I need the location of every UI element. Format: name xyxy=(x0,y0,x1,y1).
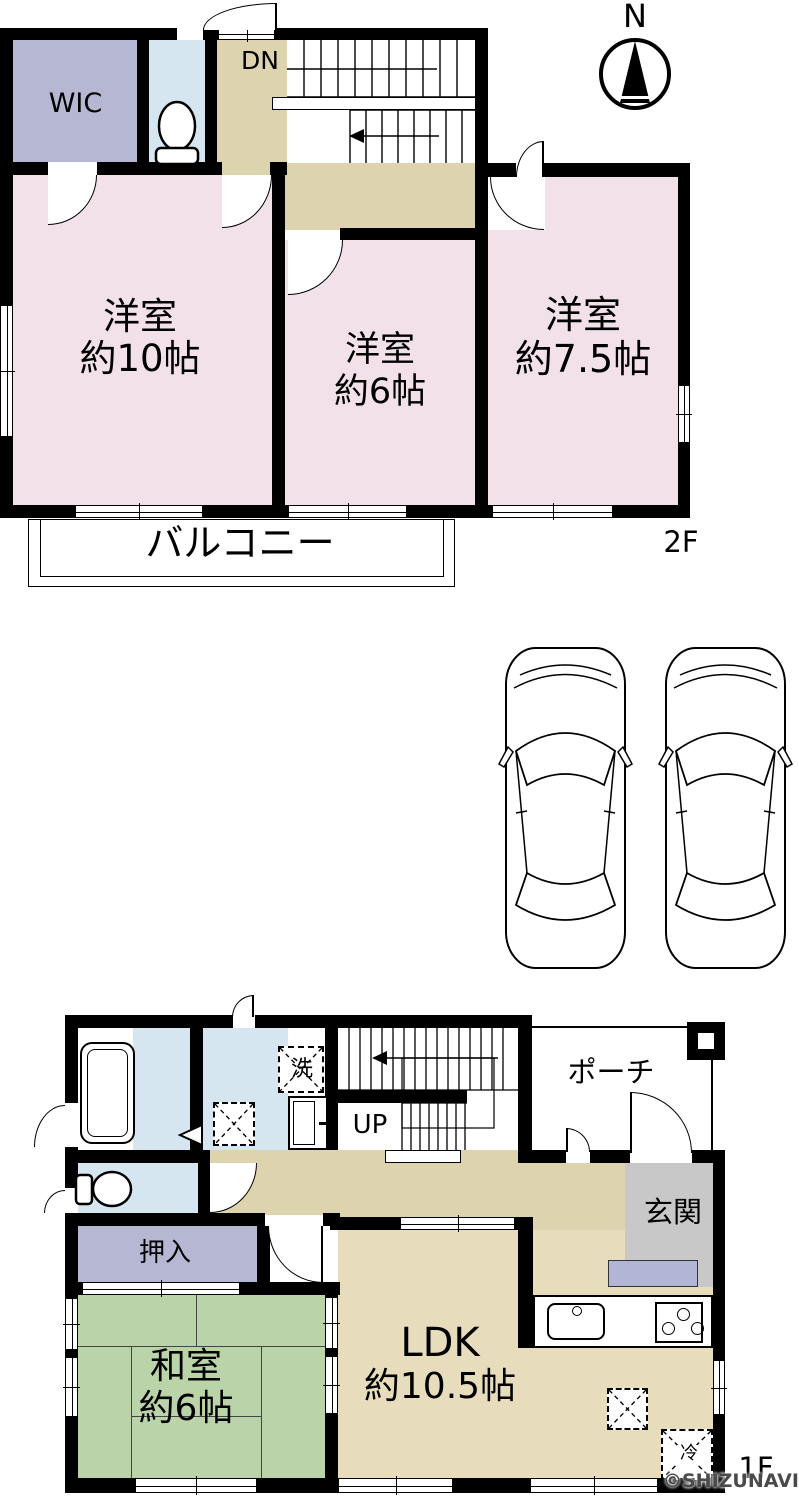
fixture-space xyxy=(213,1102,255,1146)
stair-bottom-step xyxy=(385,1150,461,1163)
tatami-line xyxy=(196,1295,197,1346)
vanity-bowl xyxy=(293,1101,315,1145)
fixture-space xyxy=(607,1388,648,1430)
window xyxy=(713,1360,725,1415)
washer-label: 洗 xyxy=(288,1058,316,1081)
ldk-size: 約10.5帖 xyxy=(350,1368,530,1406)
ldk-name: LDK xyxy=(394,1322,486,1364)
closet-label: 押入 xyxy=(133,1240,197,1267)
door-swing xyxy=(34,1105,65,1147)
tatami-line xyxy=(261,1346,262,1483)
entrance-door-swing xyxy=(630,1092,692,1153)
floor-1f-plan: 冷 UP 洗 ポーチ 玄関 押入 和室 約6帖 LDK 約10.5帖 1F xyxy=(0,0,799,1500)
wall xyxy=(65,1213,265,1226)
closet-sliding-door xyxy=(82,1282,240,1295)
kitchen-counter xyxy=(533,1295,713,1348)
window xyxy=(338,1478,453,1493)
watermark: ©SHIZUNAVI xyxy=(663,1472,797,1492)
faucet-icon xyxy=(572,1306,582,1316)
burner-icon xyxy=(691,1322,704,1335)
entrance-label: 玄関 xyxy=(641,1197,705,1227)
japanese-room-door-swing xyxy=(268,1226,323,1283)
bathtub-inner xyxy=(87,1049,128,1137)
porch-edge xyxy=(711,1058,713,1152)
floor-plan-sheet: WIC DN 洋室 約10帖 洋室 約6帖 洋室 約7.5帖 バルコニー 2F … xyxy=(0,0,799,1500)
stove xyxy=(655,1302,703,1343)
porch-label: ポーチ xyxy=(565,1057,657,1087)
wall xyxy=(518,1015,532,1163)
fridge-label: 冷 xyxy=(677,1445,701,1464)
sliding-door xyxy=(325,1356,338,1414)
wall xyxy=(590,1150,630,1163)
wall xyxy=(713,1150,725,1493)
toilet-icon xyxy=(74,1168,136,1210)
burner-icon xyxy=(677,1308,690,1321)
japanese-room-size: 約6帖 xyxy=(128,1390,244,1428)
wall xyxy=(532,1150,566,1163)
stairs-up-label: UP xyxy=(338,1112,402,1139)
wall xyxy=(65,1015,233,1028)
door-opening xyxy=(65,1103,78,1147)
vanity xyxy=(288,1096,328,1150)
pillar-core xyxy=(698,1033,714,1049)
porch-edge xyxy=(532,1026,692,1028)
wall xyxy=(518,1217,533,1348)
wall xyxy=(692,1150,725,1163)
door-swing xyxy=(44,1190,65,1213)
door-swing xyxy=(232,995,254,1017)
bathtub xyxy=(80,1042,135,1144)
door-swing xyxy=(566,1128,590,1152)
japanese-room-name: 和室 xyxy=(146,1348,226,1386)
entrance-step xyxy=(608,1260,698,1287)
window xyxy=(65,1298,78,1350)
window xyxy=(65,1357,78,1417)
stair-wall xyxy=(338,1090,467,1103)
wall xyxy=(330,1217,400,1230)
wall xyxy=(65,1150,210,1163)
window xyxy=(530,1478,658,1493)
sliding-door xyxy=(325,1297,338,1349)
wall xyxy=(65,1015,78,1493)
burner-icon xyxy=(662,1322,675,1335)
vanity-handle xyxy=(319,1122,328,1125)
wall xyxy=(255,1015,532,1028)
sliding-door xyxy=(400,1217,515,1230)
bath-door-icon xyxy=(178,1124,204,1146)
window xyxy=(135,1478,257,1493)
